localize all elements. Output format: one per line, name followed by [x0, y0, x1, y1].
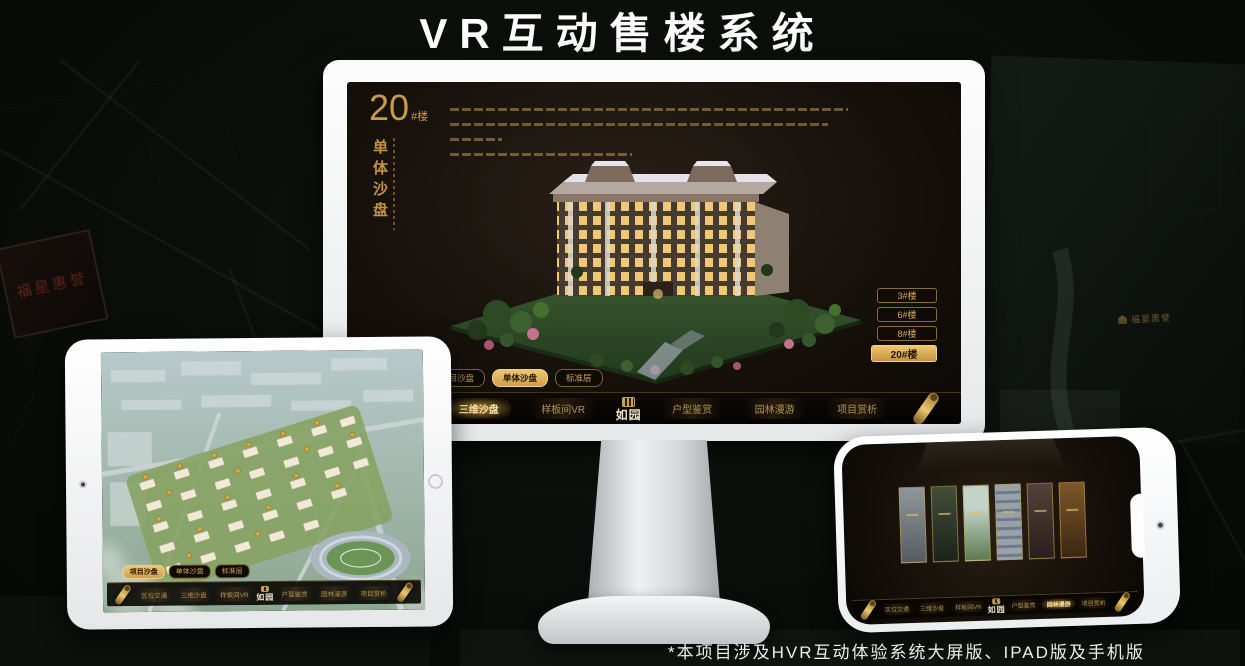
building-title-block: 20#楼 单体沙盘 — [369, 90, 428, 239]
logo-text: 如园 — [616, 409, 642, 421]
sandbox-subtabs: 项目沙盘 单体沙盘 标准层 — [429, 369, 603, 387]
floor-button-3[interactable]: 3#楼 — [877, 288, 937, 303]
tablet-nav-location[interactable]: 区位交通 — [135, 587, 173, 601]
building-number-value: 20 — [369, 87, 409, 128]
tablet-logo-text: 如园 — [256, 593, 274, 601]
phone-nav-location[interactable]: 区位交通 — [880, 603, 914, 615]
tablet-nav-project-gallery[interactable]: 项目赏析 — [355, 585, 393, 599]
phone-camera-icon — [1156, 521, 1165, 530]
phone-logo: 如园 — [987, 598, 1005, 614]
tablet-home-button[interactable] — [428, 474, 443, 489]
phone-logo-text: 如园 — [988, 605, 1006, 614]
floor-button-group: 3#楼 6#楼 8#楼 20#楼 — [871, 288, 937, 362]
developer-brand-mark: 福星惠誉 — [1118, 311, 1172, 327]
gallery-panel-4[interactable] — [995, 484, 1023, 561]
nav-item-unit-plans[interactable]: 户型鉴赏 — [660, 398, 724, 419]
subtab-standard-floor[interactable]: 标准层 — [555, 369, 603, 387]
monitor-stand-neck — [588, 440, 720, 602]
tablet-scroll-right-icon[interactable] — [396, 581, 414, 603]
phone-nav-3d-sandbox[interactable]: 三维沙盘 — [915, 602, 949, 614]
page-title: VR互动售楼系统 — [0, 0, 1245, 61]
panel-title-vertical: 单体沙盘 — [369, 139, 390, 239]
plaque-label: 福星惠誉 — [15, 266, 90, 302]
nav-item-3d-sandbox[interactable]: 三维沙盘 — [447, 398, 511, 419]
tablet-nav-garden-roam[interactable]: 园林漫游 — [315, 586, 353, 600]
nav-item-project-gallery[interactable]: 项目赏析 — [825, 398, 889, 419]
vr-gallery-panels — [899, 482, 1087, 564]
tablet-device-frame: 项目沙盘 单体沙盘 标准层 区位交通 三维沙盘 样板间VR 如园 户型鉴赏 园林… — [65, 336, 454, 629]
panel-title-english-decoration — [393, 138, 395, 230]
subtab-single-sandbox[interactable]: 单体沙盘 — [492, 369, 548, 387]
tablet-subtab-project-sandbox[interactable]: 项目沙盘 — [123, 565, 165, 579]
background-plaque: 福星惠誉 — [0, 229, 109, 339]
phone-device-frame: 区位交通 三维沙盘 样板间VR 如园 户型鉴赏 园林漫游 项目赏析 — [833, 427, 1181, 634]
poster-canvas: 福星惠誉 福星惠誉 VR互动售楼系统 20#楼 单体沙盘 — [0, 0, 1245, 666]
tablet-screen: 项目沙盘 单体沙盘 标准层 区位交通 三维沙盘 样板间VR 如园 户型鉴赏 园林… — [101, 350, 425, 613]
phone-nav-garden-roam[interactable]: 园林漫游 — [1041, 598, 1075, 610]
monitor-stand-base — [538, 596, 770, 644]
tablet-subtab-standard-floor[interactable]: 标准层 — [215, 564, 250, 578]
phone-nav-unit-plans[interactable]: 户型鉴赏 — [1006, 599, 1040, 611]
tablet-scroll-left-icon[interactable] — [114, 584, 132, 606]
tablet-subtabs: 项目沙盘 单体沙盘 标准层 — [123, 564, 250, 579]
brand-label: 福星惠誉 — [1131, 311, 1172, 326]
project-logo: 如园 — [616, 397, 642, 421]
tablet-nav-3d-sandbox[interactable]: 三维沙盘 — [175, 587, 213, 601]
ruyuan-seal-icon — [622, 397, 635, 407]
gallery-panel-3[interactable] — [963, 485, 991, 562]
footnote: *本项目涉及HVR互动体验系统大屏版、IPAD版及手机版 — [668, 638, 1145, 663]
gallery-panel-5[interactable] — [1027, 483, 1055, 560]
scroll-handle-icon[interactable] — [911, 391, 941, 424]
phone-nav-project-gallery[interactable]: 项目赏析 — [1077, 597, 1111, 609]
tablet-nav-showroom-vr[interactable]: 样板间VR — [214, 587, 255, 601]
floor-button-6[interactable]: 6#楼 — [877, 307, 937, 322]
phone-screen: 区位交通 三维沙盘 样板间VR 如园 户型鉴赏 园林漫游 项目赏析 — [841, 436, 1145, 625]
building-number-unit: #楼 — [411, 111, 428, 123]
house-icon — [1118, 315, 1127, 324]
floor-button-20[interactable]: 20#楼 — [871, 345, 937, 362]
tablet-logo: 如园 — [256, 586, 274, 601]
phone-nav-showroom-vr[interactable]: 样板间VR — [950, 601, 987, 613]
phone-nav-bar: 区位交通 三维沙盘 样板间VR 如园 户型鉴赏 园林漫游 项目赏析 — [852, 591, 1138, 620]
phone-notch — [1130, 494, 1145, 558]
nav-item-garden-roam[interactable]: 园林漫游 — [743, 398, 807, 419]
tablet-camera-icon — [79, 481, 87, 489]
gallery-panel-6[interactable] — [1059, 482, 1087, 559]
tablet-nav-unit-plans[interactable]: 户型鉴赏 — [276, 586, 314, 600]
tablet-nav-bar: 区位交通 三维沙盘 样板间VR 如园 户型鉴赏 园林漫游 项目赏析 — [107, 580, 421, 607]
building-model-illustration[interactable] — [437, 144, 873, 384]
phone-scroll-left-icon[interactable] — [859, 599, 877, 621]
interior-ceiling-decoration — [915, 438, 1066, 473]
building-number: 20#楼 — [369, 90, 428, 135]
phone-scroll-right-icon[interactable] — [1114, 591, 1132, 613]
gallery-panel-1[interactable] — [899, 487, 927, 564]
nav-item-showroom-vr[interactable]: 样板间VR — [529, 398, 597, 419]
gallery-panel-2[interactable] — [931, 486, 959, 563]
tablet-subtab-single-sandbox[interactable]: 单体沙盘 — [169, 564, 211, 578]
floor-button-8[interactable]: 8#楼 — [877, 326, 937, 341]
